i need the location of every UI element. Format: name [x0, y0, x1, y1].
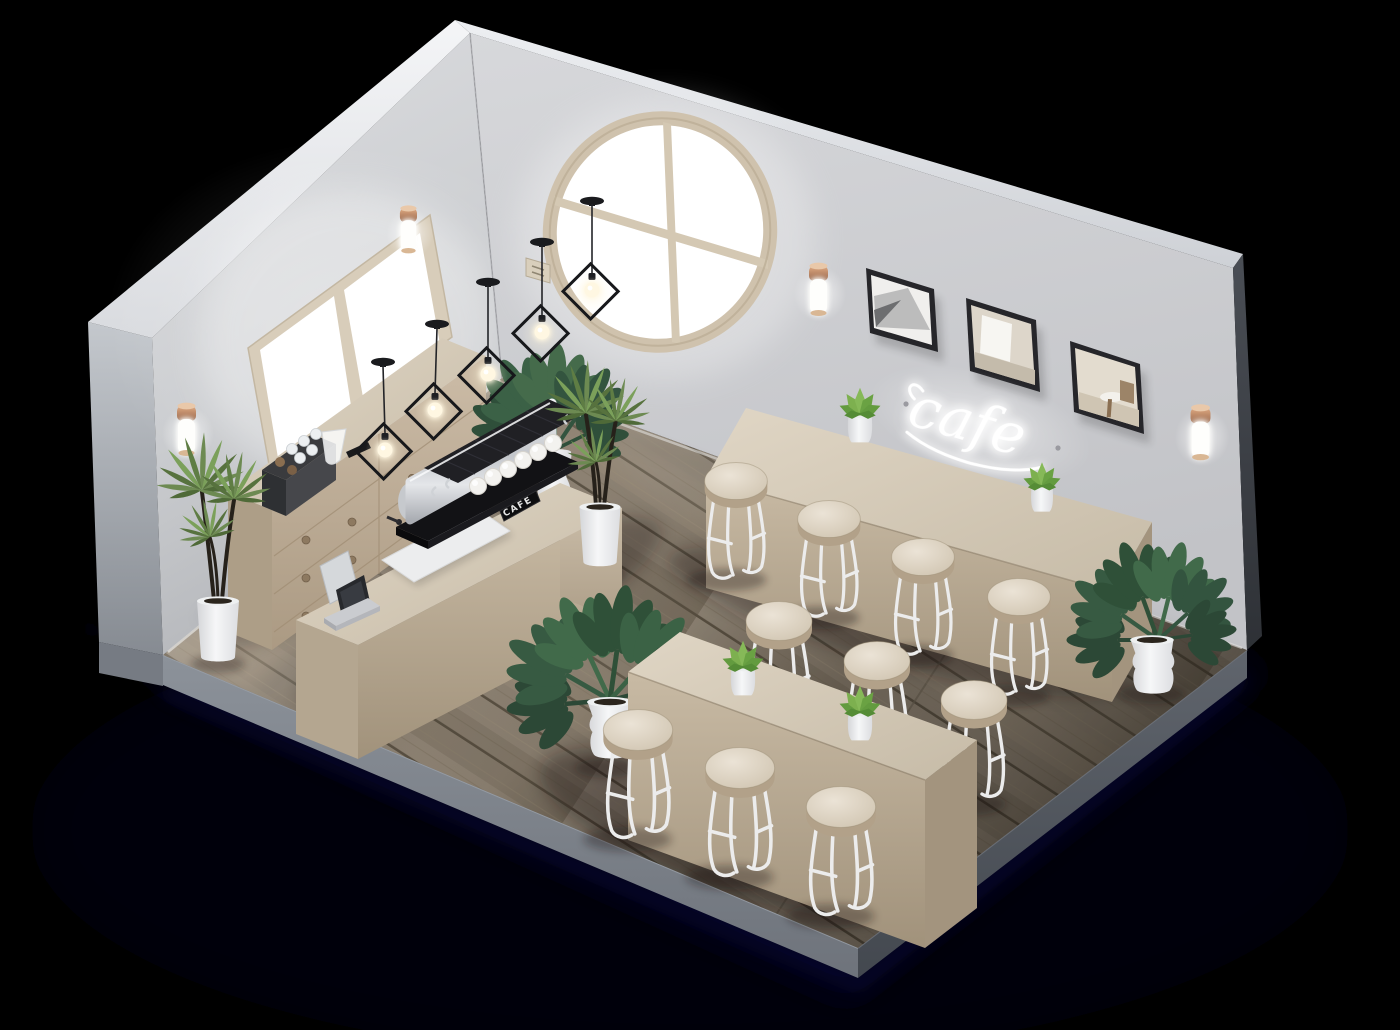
plant-pot [579, 502, 620, 566]
plant-pot [1130, 635, 1174, 693]
cafe-isometric-render: cafe cafe [0, 0, 1400, 1030]
plant-pot [197, 596, 239, 661]
